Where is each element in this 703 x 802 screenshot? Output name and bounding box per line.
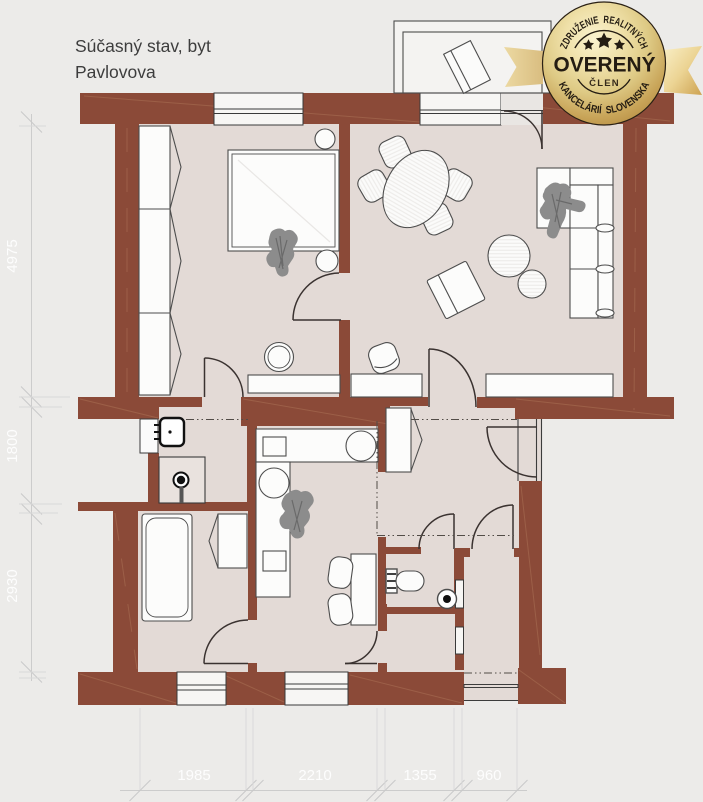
- svg-text:1800: 1800: [4, 429, 21, 462]
- svg-text:960: 960: [476, 767, 501, 784]
- svg-text:Pavlovova: Pavlovova: [75, 62, 156, 82]
- svg-text:4975: 4975: [4, 239, 21, 272]
- svg-text:Súčasný stav, byt: Súčasný stav, byt: [75, 36, 211, 56]
- svg-text:2930: 2930: [4, 569, 21, 602]
- svg-text:1985: 1985: [177, 767, 210, 784]
- svg-text:OVERENÝ: OVERENÝ: [554, 52, 656, 77]
- svg-text:ČLEN: ČLEN: [589, 77, 620, 89]
- svg-text:1355: 1355: [403, 767, 436, 784]
- svg-text:2210: 2210: [298, 767, 331, 784]
